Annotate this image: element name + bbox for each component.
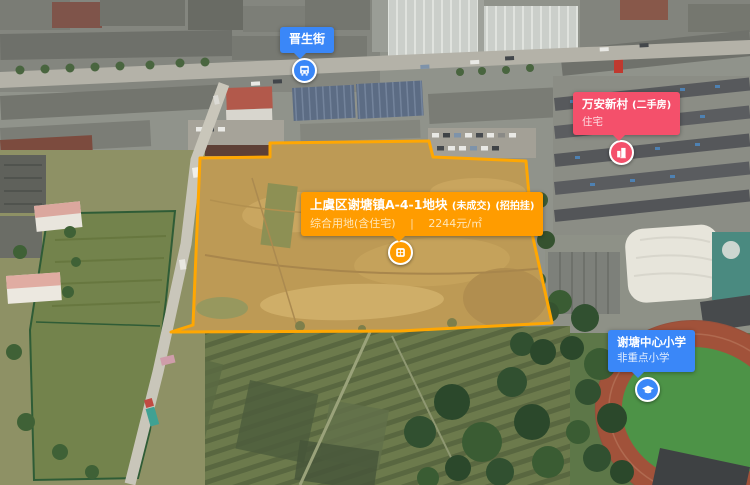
graduation-cap-icon bbox=[641, 383, 655, 397]
land-plot-icon bbox=[394, 246, 407, 259]
satellite-basemap bbox=[0, 0, 750, 485]
residential-pin[interactable] bbox=[609, 140, 634, 165]
street-label-bubble[interactable]: 晋生街 bbox=[280, 27, 334, 53]
community-tag: (二手房) bbox=[632, 100, 671, 111]
school-pin[interactable] bbox=[635, 377, 660, 402]
bus-icon bbox=[298, 64, 311, 77]
school-name: 谢塘中心小学 bbox=[617, 335, 686, 349]
parcel-status: (未成交) bbox=[452, 201, 491, 212]
community-name: 万安新村 bbox=[582, 97, 628, 111]
school-category: 非重点小学 bbox=[617, 352, 686, 365]
bubble-pointer bbox=[632, 372, 644, 378]
map-canvas[interactable]: 晋生街 万安新村 (二手房) 住宅 上虞区谢塘镇A-4-1地块 bbox=[0, 0, 750, 485]
bus-station-pin[interactable] bbox=[292, 58, 317, 83]
parcel-pin[interactable] bbox=[388, 240, 413, 265]
community-category: 住宅 bbox=[582, 116, 671, 129]
street-name: 晋生街 bbox=[289, 32, 325, 47]
parcel-name: 上虞区谢塘镇A-4-1地块 bbox=[310, 197, 447, 212]
bubble-pointer bbox=[613, 135, 625, 141]
parcel-price: 2244元/㎡ bbox=[428, 217, 482, 230]
residential-label-bubble[interactable]: 万安新村 (二手房) 住宅 bbox=[573, 92, 680, 135]
building-icon bbox=[615, 146, 628, 159]
divider: | bbox=[410, 217, 414, 230]
parcel-sale-method: (招拍挂) bbox=[495, 201, 534, 212]
parcel-land-use: 综合用地(含住宅) bbox=[310, 217, 396, 230]
bubble-pointer bbox=[294, 53, 306, 59]
bubble-pointer bbox=[393, 236, 405, 242]
parcel-label-bubble[interactable]: 上虞区谢塘镇A-4-1地块 (未成交) (招拍挂) 综合用地(含住宅) | 22… bbox=[301, 192, 543, 236]
school-label-bubble[interactable]: 谢塘中心小学 非重点小学 bbox=[608, 330, 695, 372]
